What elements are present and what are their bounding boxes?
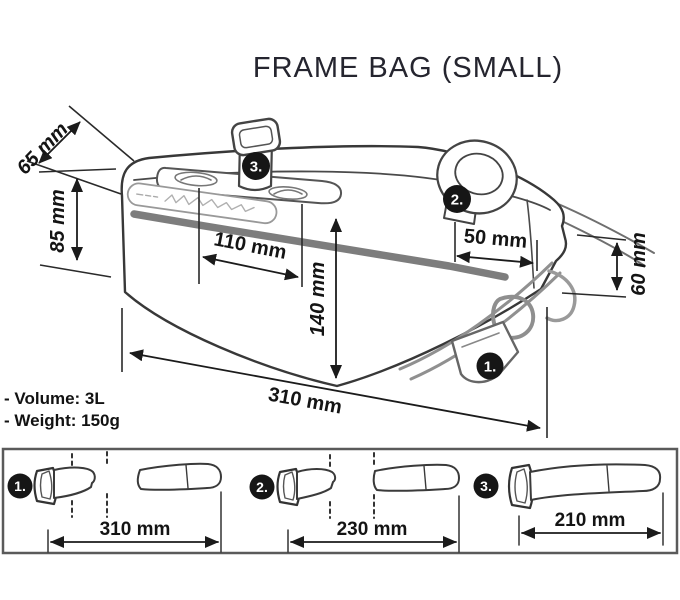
dim-label-front-height: 85 mm — [47, 189, 69, 252]
legend-strap-1-length: 310 mm — [100, 519, 171, 540]
dim-label-top-width: 65 mm — [13, 118, 73, 179]
volume-spec: - Volume: 3L — [4, 389, 105, 408]
frame-bag-diagram-page: FRAME BAG (SMALL) — [0, 0, 680, 600]
legend-marker-3: 3. — [480, 478, 492, 494]
legend-marker-1: 1. — [14, 478, 26, 494]
legend-marker-2: 2. — [256, 479, 268, 495]
dim-label-length: 310 mm — [266, 383, 343, 418]
bag-illustration — [122, 118, 654, 386]
marker-1-badge: 1. — [477, 353, 504, 380]
legend-strap-2-length: 230 mm — [337, 519, 408, 540]
marker-2-label: 2. — [451, 192, 464, 209]
weight-spec: - Weight: 150g — [4, 411, 120, 430]
page-title: FRAME BAG (SMALL) — [253, 52, 563, 84]
dim-label-rear-height: 60 mm — [628, 232, 650, 295]
marker-3-badge: 3. — [242, 152, 270, 180]
marker-2-badge: 2. — [443, 185, 471, 213]
legend-strap-3-length: 210 mm — [555, 510, 626, 531]
marker-1-label: 1. — [484, 359, 497, 376]
frame-bag-diagram: FRAME BAG (SMALL) — [0, 0, 680, 600]
marker-3-label: 3. — [250, 159, 263, 176]
dim-label-center-height: 140 mm — [307, 262, 329, 337]
